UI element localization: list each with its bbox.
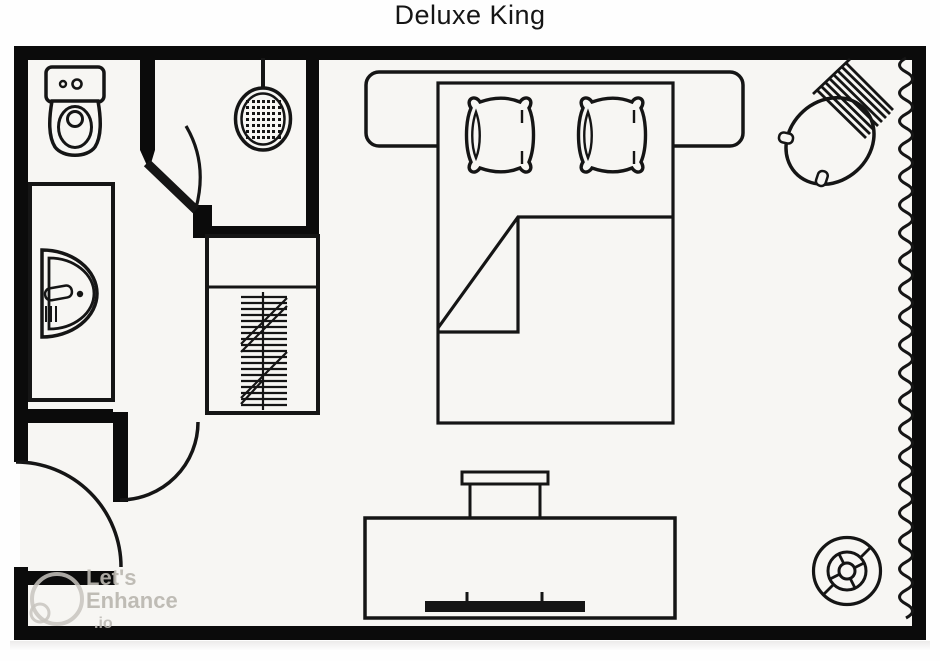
floor-plan: Deluxe King xyxy=(0,0,940,661)
wall-shower-right xyxy=(306,46,319,238)
hanger-rod-and-hangers xyxy=(241,292,287,410)
faucet-knob xyxy=(77,291,83,297)
wall-left-upper xyxy=(14,46,28,462)
floor-plan-drawing xyxy=(0,0,940,661)
pedestal-cap xyxy=(462,472,548,484)
wall-under-vanity xyxy=(14,409,113,423)
watermark-line3: .io xyxy=(86,612,178,635)
chair-arm-stub-left xyxy=(778,132,794,145)
pillow-left-icon xyxy=(467,98,534,172)
watermark: Let's Enhance .io xyxy=(86,566,178,635)
wall-right xyxy=(912,46,926,640)
tv-icon xyxy=(425,601,585,612)
wall-drop-shadow xyxy=(10,641,930,650)
toilet-icon xyxy=(46,67,104,155)
wall-bathroom xyxy=(140,46,155,150)
toilet-tank xyxy=(46,67,104,102)
watermark-line1: Let's xyxy=(86,566,178,589)
watermark-line2: Enhance xyxy=(86,589,178,612)
wall-corridor-stub xyxy=(113,412,128,502)
pillow-right-icon xyxy=(579,98,646,172)
